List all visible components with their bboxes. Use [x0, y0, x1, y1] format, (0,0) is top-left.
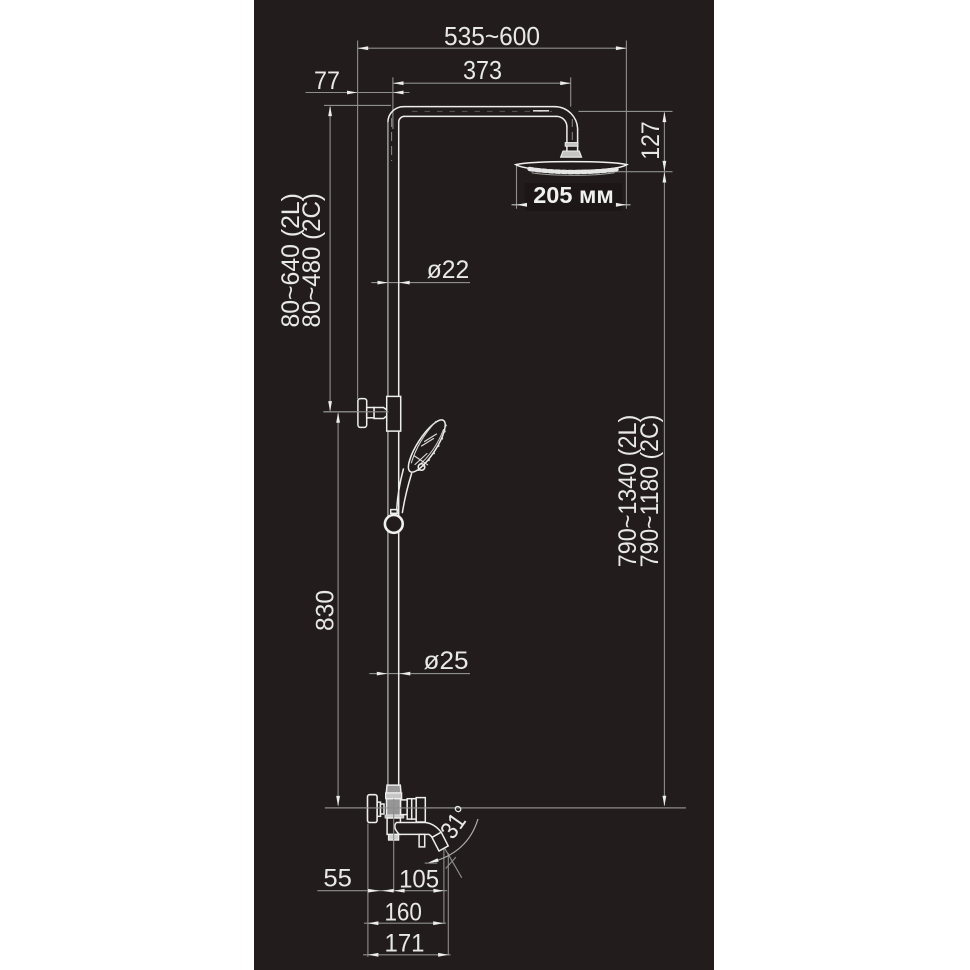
svg-text:55: 55 [323, 865, 352, 893]
svg-text:830: 830 [311, 590, 339, 631]
svg-text:790~1340 (2L): 790~1340 (2L) [614, 415, 642, 568]
svg-text:373: 373 [463, 57, 502, 85]
svg-text:80~640 (2L): 80~640 (2L) [277, 193, 305, 328]
svg-text:ø25: ø25 [424, 647, 469, 675]
svg-text:105: 105 [399, 866, 439, 894]
svg-text:77: 77 [314, 67, 340, 95]
svg-text:160: 160 [384, 899, 422, 927]
svg-text:127: 127 [637, 121, 665, 160]
svg-text:535~600: 535~600 [444, 23, 540, 51]
svg-text:205 мм: 205 мм [533, 182, 614, 208]
svg-text:ø22: ø22 [427, 256, 470, 284]
svg-text:171: 171 [385, 930, 425, 958]
